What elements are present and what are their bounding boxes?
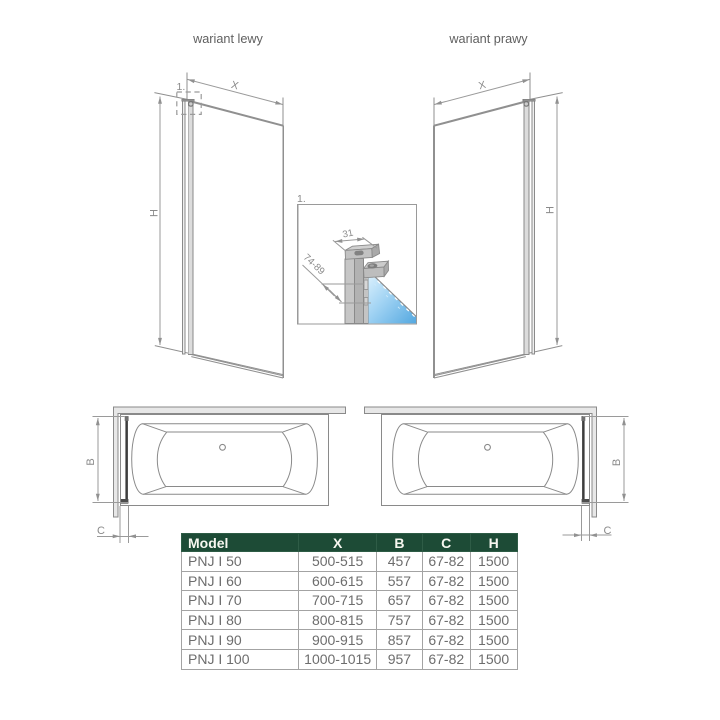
- svg-text:C: C: [97, 525, 105, 537]
- svg-text:31: 31: [342, 228, 355, 241]
- svg-text:74-89: 74-89: [301, 252, 327, 277]
- svg-text:B: B: [611, 459, 623, 466]
- svg-text:H: H: [149, 209, 161, 217]
- svg-text:C: C: [604, 525, 612, 537]
- svg-text:1.: 1.: [177, 81, 186, 93]
- svg-text:X: X: [230, 79, 240, 92]
- svg-text:wariant lewy: wariant lewy: [192, 32, 263, 46]
- svg-text:X: X: [477, 79, 487, 92]
- svg-text:B: B: [85, 458, 97, 465]
- svg-text:H: H: [545, 206, 557, 214]
- svg-text:wariant prawy: wariant prawy: [448, 32, 528, 46]
- svg-text:1.: 1.: [297, 193, 306, 205]
